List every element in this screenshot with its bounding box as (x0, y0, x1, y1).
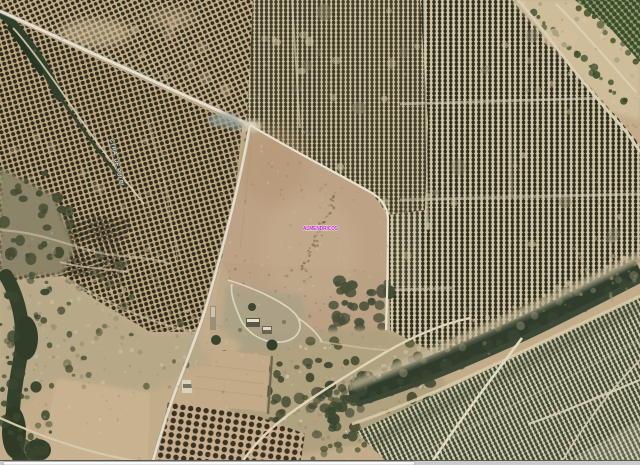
svg-text:ALMENDRICOS: ALMENDRICOS (303, 226, 338, 232)
